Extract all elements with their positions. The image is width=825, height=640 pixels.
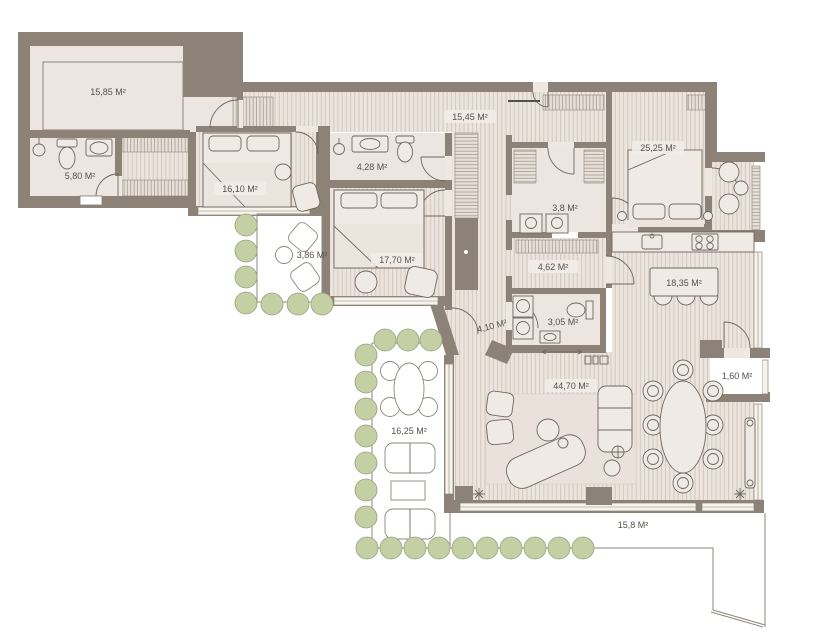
outdoor-coffee-table	[391, 481, 425, 500]
armchair-icon	[485, 390, 514, 417]
chair-icon	[643, 381, 663, 401]
room-label-living-room: 44,70 М²	[553, 381, 589, 391]
chair-icon	[719, 162, 739, 182]
room-label-wardrobe: 4,62 М²	[538, 262, 569, 272]
table-icon	[734, 181, 748, 195]
room-label-terrace-2: 15,8 М²	[618, 520, 649, 530]
table-icon	[276, 247, 293, 264]
toilet-icon	[57, 139, 77, 147]
dining-table-icon	[660, 381, 706, 473]
vent	[80, 196, 102, 205]
sink-icon	[520, 214, 542, 233]
room-label-bedroom-1: 16,10 М²	[222, 184, 258, 194]
lamp-icon	[618, 212, 627, 221]
room-label-terrace-1: 16,25 М²	[391, 426, 427, 436]
wardrobe-hatch	[122, 136, 188, 152]
planter-box	[586, 487, 612, 505]
lamp-icon	[704, 212, 713, 221]
chair-icon	[719, 194, 739, 214]
room-label-bedroom-3: 25,25 М²	[640, 143, 676, 153]
planter-box	[455, 486, 473, 503]
room-label-bathroom-1: 5,80 М²	[65, 171, 96, 181]
room-label-balcony-1: 3,86 М²	[297, 250, 328, 260]
kitchen-counter	[612, 232, 754, 252]
pillow-icon	[341, 193, 377, 208]
pillow-icon	[633, 204, 665, 219]
coffee-table-icon	[537, 419, 559, 441]
room-label-bathroom-3: 3,8 М²	[552, 203, 578, 213]
room-label-bathroom-2: 4,28 М²	[357, 162, 388, 172]
duct-shaft	[584, 150, 604, 183]
side-table-icon	[604, 460, 620, 476]
duct-shaft	[514, 150, 536, 183]
room-label-bedroom-2: 17,70 М²	[379, 255, 415, 265]
armchair-icon	[486, 419, 514, 446]
room-label-balcony-2: 1,60 М²	[722, 371, 753, 381]
sink-icon	[546, 214, 568, 233]
balcony-planter-strip	[752, 166, 760, 232]
room-label-kitchen: 18,35 М²	[666, 278, 702, 288]
bed-3	[618, 150, 713, 227]
floor-plan-canvas: 15,85 М² 5,80 М² 16,10 М² 4,28 М² 17,70 …	[0, 0, 825, 640]
pouf-icon	[355, 271, 377, 293]
armchair-icon	[403, 265, 438, 299]
room-label-corridor: 15,45 М²	[452, 112, 488, 122]
room-label-top-left: 15,85 М²	[90, 87, 126, 97]
toilet-icon	[586, 301, 593, 319]
pillow-icon	[209, 136, 241, 151]
pillow-icon	[669, 204, 701, 219]
pillow-icon	[381, 193, 417, 208]
floor-plan-drawing: 15,85 М² 5,80 М² 16,10 М² 4,28 М² 17,70 …	[0, 0, 825, 640]
outdoor-table-icon	[394, 363, 424, 415]
radiator-icon	[745, 418, 755, 488]
sink-icon	[540, 331, 560, 343]
side-table-icon	[275, 164, 291, 180]
room-label-wc: 3,05 М²	[548, 317, 579, 327]
tall-cabinet	[455, 218, 478, 290]
pillow-icon	[247, 136, 279, 151]
sofa-icon	[598, 386, 632, 452]
